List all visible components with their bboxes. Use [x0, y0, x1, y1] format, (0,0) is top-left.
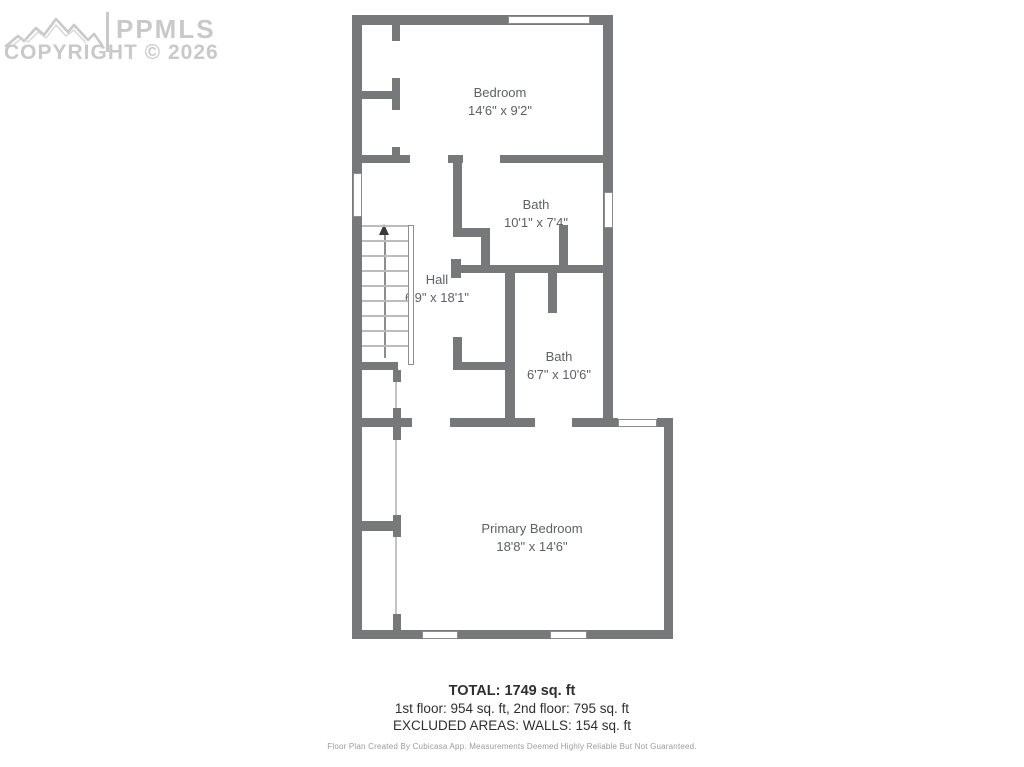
stair-direction-line	[384, 233, 386, 358]
stair-tread	[362, 240, 408, 242]
room-label-bath-lower: Bath 6'7" x 10'6"	[527, 348, 591, 384]
wall-segment	[548, 272, 557, 313]
wall-segment	[455, 362, 508, 370]
wall-segment	[450, 418, 535, 427]
wall-segment	[393, 614, 401, 631]
stair-tread	[362, 225, 408, 227]
floor-plan-drawing: Bedroom 14'6" x 9'2" Bath 10'1" x 7'4" H…	[0, 0, 1024, 767]
total-area: TOTAL: 1749 sq. ft	[0, 683, 1024, 700]
wall-segment	[393, 515, 401, 537]
wall-segment	[448, 155, 463, 163]
room-name: Primary Bedroom	[481, 520, 582, 538]
disclaimer: Floor Plan Created By Cubicasa App. Meas…	[0, 742, 1024, 751]
excluded-areas: EXCLUDED AREAS: WALLS: 154 sq. ft	[0, 718, 1024, 734]
wall-segment	[505, 268, 515, 425]
wall-segment	[352, 630, 673, 639]
room-dimensions: 14'6" x 9'2"	[468, 102, 532, 120]
window-marker	[618, 419, 657, 427]
wall-segment	[352, 362, 398, 370]
wall-segment	[352, 91, 398, 99]
closet-partition-line	[395, 537, 397, 614]
stair-tread	[362, 255, 408, 257]
wall-segment	[393, 408, 401, 440]
wall-segment	[500, 155, 603, 163]
room-label-primary-bedroom: Primary Bedroom 18'8" x 14'6"	[481, 520, 582, 556]
wall-segment	[453, 265, 613, 273]
wall-segment	[352, 15, 362, 639]
stair-tread	[362, 270, 408, 272]
stair-railing	[408, 225, 414, 365]
wall-segment	[453, 163, 462, 232]
wall-segment	[352, 155, 410, 163]
stair-tread	[362, 345, 408, 347]
wall-segment	[392, 25, 400, 41]
room-label-bedroom: Bedroom 14'6" x 9'2"	[468, 84, 532, 120]
stair-tread	[362, 300, 408, 302]
room-name: Bath	[527, 348, 591, 366]
room-name: Bath	[504, 196, 568, 214]
stair-tread	[362, 315, 408, 317]
area-summary: TOTAL: 1749 sq. ft 1st floor: 954 sq. ft…	[0, 683, 1024, 751]
window-marker	[550, 631, 587, 639]
floor-plan-page: PPMLS COPYRIGHT © 2026 Bedroom 14'6" x 9…	[0, 0, 1024, 767]
window-marker	[353, 173, 362, 217]
closet-partition-line	[395, 440, 397, 515]
window-marker	[604, 192, 613, 228]
window-marker	[508, 16, 590, 24]
closet-partition-line	[395, 382, 397, 408]
room-dimensions: 6'7" x 10'6"	[527, 366, 591, 384]
wall-segment	[657, 418, 673, 427]
wall-segment	[559, 225, 568, 267]
floor-areas: 1st floor: 954 sq. ft, 2nd floor: 795 sq…	[0, 701, 1024, 717]
wall-segment	[393, 370, 401, 382]
wall-segment	[572, 418, 618, 427]
stair-tread	[362, 330, 408, 332]
wall-segment	[362, 521, 395, 531]
wall-segment	[352, 418, 412, 427]
stair-tread	[362, 285, 408, 287]
room-dimensions: 6'9" x 18'1"	[405, 289, 469, 307]
wall-segment	[664, 418, 673, 639]
window-marker	[422, 631, 458, 639]
room-dimensions: 18'8" x 14'6"	[481, 538, 582, 556]
room-name: Bedroom	[468, 84, 532, 102]
